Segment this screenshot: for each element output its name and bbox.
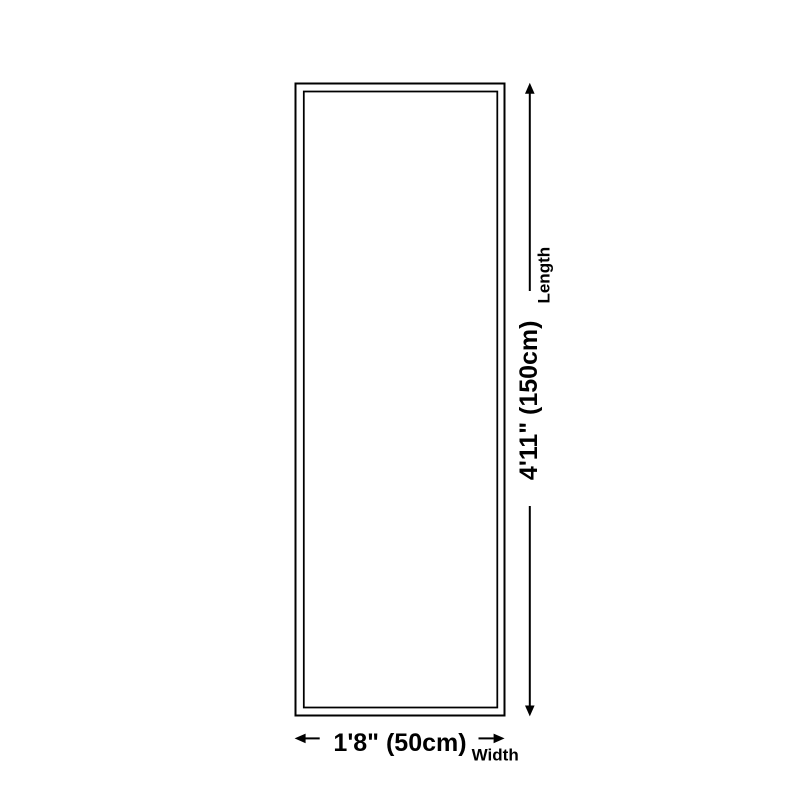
svg-text:4'11" (150cm): 4'11" (150cm): [515, 321, 543, 481]
svg-text:1'8" (50cm): 1'8" (50cm): [333, 729, 466, 757]
svg-text:Length: Length: [535, 247, 554, 304]
svg-text:Width: Width: [472, 746, 519, 765]
